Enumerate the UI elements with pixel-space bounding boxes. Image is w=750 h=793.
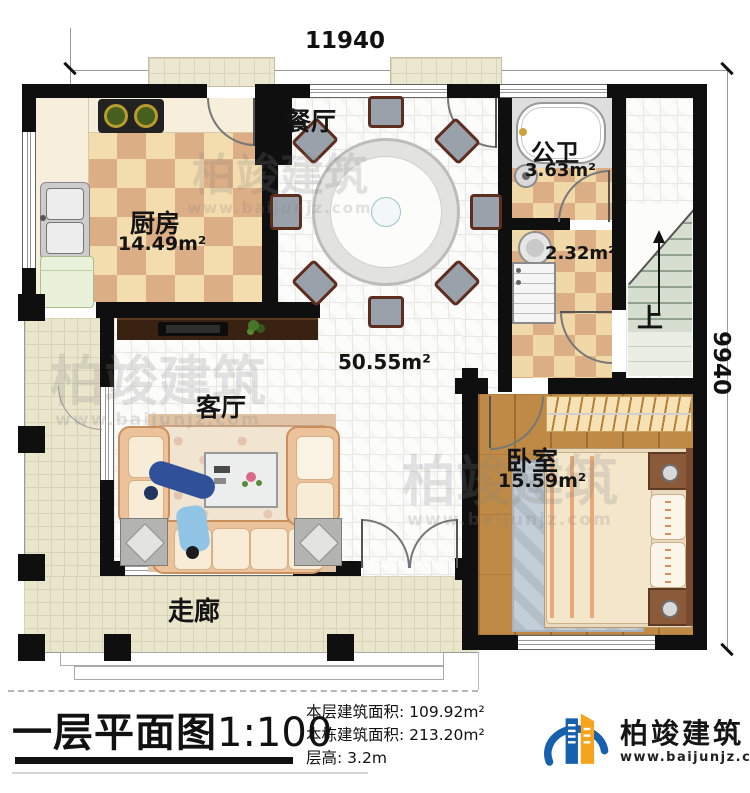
wall-segment xyxy=(693,84,707,650)
remote-icon xyxy=(214,466,230,473)
fridge-icon xyxy=(40,256,94,308)
plant-icon xyxy=(248,320,259,331)
plan-title-text: 一层平面图 xyxy=(12,710,217,756)
brand-website: www.baijunjz.com xyxy=(620,750,750,765)
stat-row: 本栋建筑面积: 213.20m² xyxy=(306,724,485,747)
kitchen-door-leaf xyxy=(253,98,255,146)
brand-logo-icon xyxy=(540,708,614,778)
title-rule-thick xyxy=(15,757,293,764)
stairs-up-label: 上 xyxy=(630,298,670,335)
entry-landing-tiles xyxy=(390,57,502,87)
corridor-floor xyxy=(24,576,478,653)
entry-step xyxy=(74,666,444,680)
floor-plan-canvas: 11940 9940 xyxy=(0,0,750,793)
dining-chair-icon xyxy=(368,96,404,128)
width-dimension-label: 11940 xyxy=(278,28,412,54)
wall-segment xyxy=(655,635,707,650)
side-table-icon xyxy=(294,518,342,566)
entrance-door-leaf-left xyxy=(361,519,363,568)
column xyxy=(18,634,45,661)
armchair-cushion xyxy=(296,436,334,480)
stat-value: 109.92m² xyxy=(409,703,485,721)
plan-title: 一层平面图1:100 xyxy=(12,700,332,758)
drip-line xyxy=(8,690,478,692)
corridor-label: 走廊 xyxy=(168,591,220,628)
entrance-door-leaf-right xyxy=(456,519,458,568)
column xyxy=(18,426,45,453)
person-head-icon xyxy=(186,546,199,559)
wall-segment xyxy=(462,635,518,650)
sink-faucet-icon xyxy=(40,215,46,221)
stair-direction-arrow-icon xyxy=(653,230,665,243)
kitchen-area-label: 14.49m² xyxy=(118,233,206,255)
pillow-icon xyxy=(650,494,686,540)
wall-segment xyxy=(22,84,207,98)
headboard xyxy=(686,448,693,626)
depth-dimension-label: 9940 xyxy=(708,318,734,408)
stat-label: 层高: xyxy=(306,749,342,767)
title-rule-thin xyxy=(12,772,368,774)
brand-name: 柏竣建筑 xyxy=(620,712,744,752)
laundry-area-label: 2.32m² xyxy=(545,243,616,264)
drip-line-vertical xyxy=(478,652,479,690)
dining-door-leaf xyxy=(495,98,497,148)
entry-landing-tiles xyxy=(148,57,275,87)
side-table-icon xyxy=(120,518,168,566)
living-window-west xyxy=(100,387,114,480)
brand-logo: 柏竣建筑 www.baijunjz.com xyxy=(540,706,745,782)
nightstand-icon xyxy=(648,588,688,626)
wall-segment xyxy=(447,84,500,98)
dining-chair-icon xyxy=(470,194,502,230)
tv-screen xyxy=(166,325,220,333)
nightstand-icon xyxy=(648,452,688,490)
stat-value: 213.20m² xyxy=(409,726,485,744)
bedroom-area-label: 15.59m² xyxy=(498,470,586,492)
column xyxy=(327,634,354,661)
column xyxy=(18,554,45,581)
dining-chair-icon xyxy=(270,194,302,230)
bathtub-faucet-icon xyxy=(519,128,527,136)
sink-basin xyxy=(46,188,84,220)
kitchen-window xyxy=(22,132,36,268)
wall-segment xyxy=(100,318,114,387)
column xyxy=(104,634,131,661)
living-room-label: 客厅 xyxy=(196,388,246,424)
hall-area-label: 50.55m² xyxy=(338,350,431,374)
washer-knob xyxy=(516,268,521,273)
washbasin-inner xyxy=(526,239,544,257)
build-stats: 本层建筑面积: 109.92m² 本栋建筑面积: 213.20m² 层高: 3.… xyxy=(306,701,485,770)
stat-label: 本层建筑面积: xyxy=(306,703,404,721)
dining-room-label: 餐厅 xyxy=(286,102,336,138)
wall-segment xyxy=(498,84,512,392)
dining-table-center xyxy=(371,197,401,227)
wall-segment xyxy=(548,378,707,394)
wall-segment xyxy=(462,368,478,650)
remote-icon xyxy=(214,478,226,484)
sofa-cushion xyxy=(250,528,288,570)
stat-value: 3.2m xyxy=(347,749,387,767)
top-dimension-extension xyxy=(70,28,71,90)
sofa-cushion xyxy=(212,528,250,570)
bathroom-door-leaf xyxy=(608,170,610,222)
wardrobe-rail xyxy=(548,413,690,415)
stove-burner-icon xyxy=(134,104,158,128)
person-head-icon xyxy=(144,486,158,500)
table-flower-icon xyxy=(246,472,256,482)
wall-segment xyxy=(612,84,626,310)
pillow-icon xyxy=(650,542,686,588)
stat-row: 层高: 3.2m xyxy=(306,747,485,770)
staircase-lower xyxy=(628,332,692,376)
laundry-door-leaf xyxy=(560,311,612,313)
washer-knob xyxy=(516,280,521,285)
stat-row: 本层建筑面积: 109.92m² xyxy=(306,701,485,724)
stove-burner-icon xyxy=(104,104,128,128)
wall-segment xyxy=(22,84,36,132)
column xyxy=(18,294,45,321)
bedroom-window xyxy=(518,635,655,650)
sink-basin xyxy=(46,222,84,254)
wall-segment xyxy=(96,302,320,318)
dining-chair-icon xyxy=(368,296,404,328)
bedroom-door-leaf xyxy=(489,396,491,448)
fridge-divider xyxy=(40,270,92,271)
bathroom-window xyxy=(500,84,607,98)
stat-label: 本栋建筑面积: xyxy=(306,726,404,744)
wall-segment xyxy=(262,165,278,318)
public-bath-area-label: 3.63m² xyxy=(525,160,596,181)
